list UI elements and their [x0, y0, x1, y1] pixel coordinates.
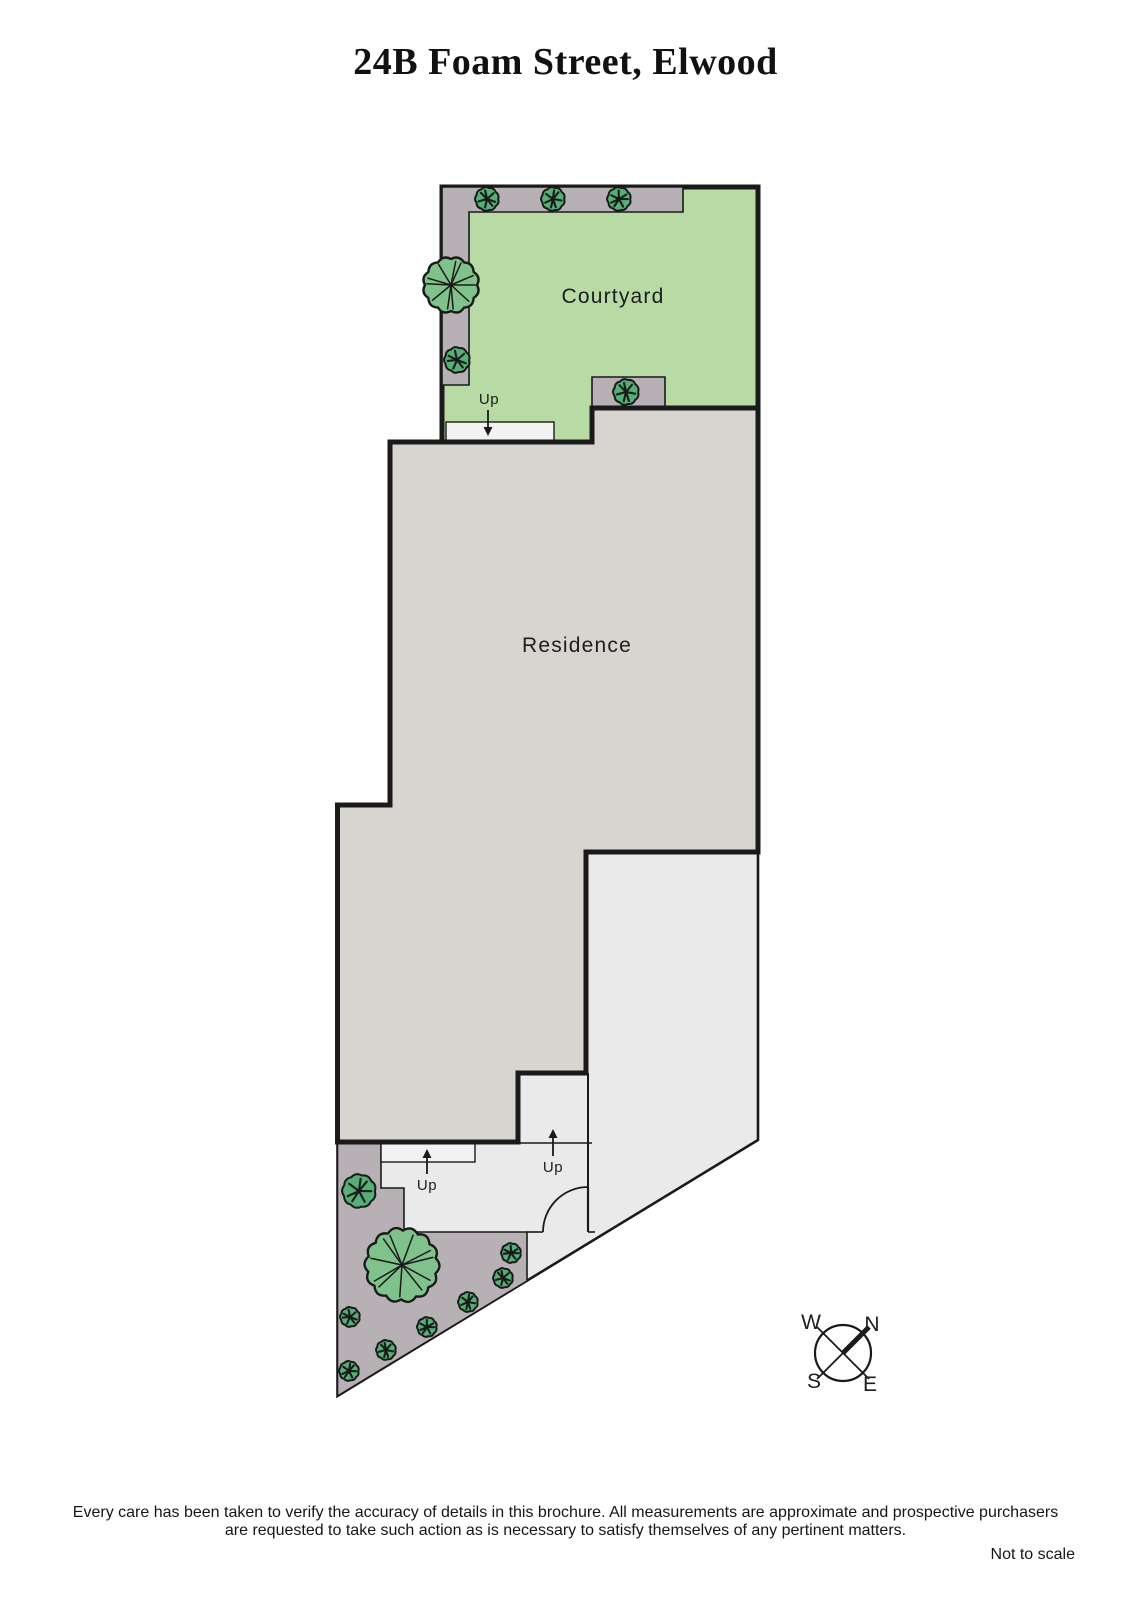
disclaimer-line-1: Every care has been taken to verify the …: [0, 1504, 1131, 1522]
site-plan-svg: UpUpUpCourtyardResidenceWNSE: [0, 0, 1131, 1600]
disclaimer: Every care has been taken to verify the …: [0, 1504, 1131, 1540]
up-label: Up: [479, 391, 499, 408]
bush-icon: [541, 187, 565, 211]
bush-icon: [376, 1340, 396, 1360]
residence-label: Residence: [522, 634, 632, 657]
bush-icon: [607, 187, 631, 211]
courtyard-steps: [446, 422, 554, 442]
bush-icon: [342, 1174, 375, 1208]
compass-label-n: N: [864, 1313, 879, 1336]
bush-icon: [475, 187, 499, 211]
scale-note: Not to scale: [991, 1546, 1075, 1564]
compass-label-s: S: [807, 1370, 821, 1393]
courtyard-label: Courtyard: [561, 285, 664, 308]
bush-icon: [340, 1307, 360, 1327]
bush-icon: [444, 347, 470, 373]
disclaimer-line-2: are requested to take such action as is …: [0, 1522, 1131, 1540]
compass-label-w: W: [801, 1311, 821, 1334]
tree-icon: [365, 1228, 440, 1302]
bush-icon: [501, 1243, 521, 1263]
up-label: Up: [543, 1159, 563, 1176]
up-label: Up: [417, 1177, 437, 1194]
bush-icon: [613, 379, 639, 405]
brochure-page: { "title": "24B Foam Street, Elwood", "f…: [0, 0, 1131, 1600]
bush-icon: [493, 1268, 513, 1288]
compass-label-e: E: [863, 1373, 877, 1396]
bush-icon: [417, 1317, 437, 1337]
bush-icon: [339, 1361, 359, 1381]
tree-icon: [423, 257, 478, 312]
bush-icon: [458, 1292, 478, 1312]
